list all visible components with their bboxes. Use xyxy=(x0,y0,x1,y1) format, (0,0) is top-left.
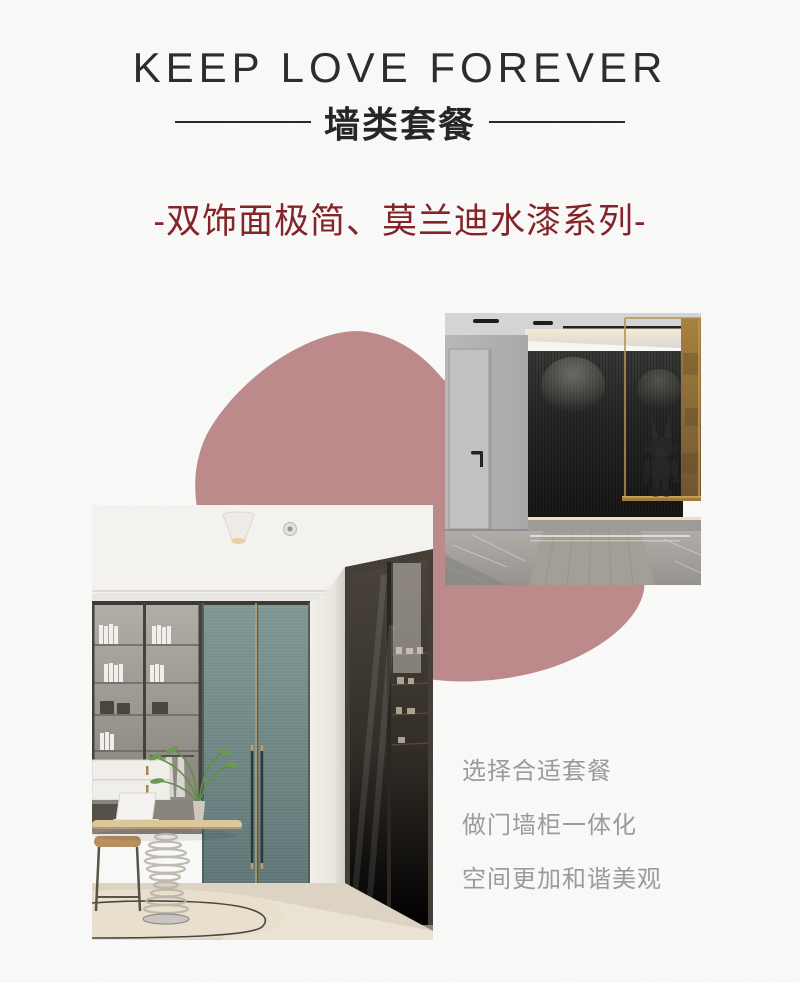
poster: KEEP LOVE FOREVER 墙类套餐 -双饰面极简、莫兰迪水漆系列- 选… xyxy=(0,0,800,983)
vase xyxy=(193,801,205,823)
marble-floor xyxy=(445,531,701,585)
laptop xyxy=(113,793,159,823)
glass-sliding-door xyxy=(345,549,433,937)
feature-line-2: 做门墙柜一体化 xyxy=(462,814,662,838)
right-divider-line xyxy=(489,121,625,123)
feature-list: 选择合适套餐 做门墙柜一体化 空间更加和谐美观 xyxy=(462,760,662,922)
door-handle xyxy=(471,451,483,455)
subtitle-row: 墙类套餐 xyxy=(0,100,800,144)
study-room-photo xyxy=(92,505,433,940)
curved-wall xyxy=(310,567,345,895)
recessed-light xyxy=(284,523,297,536)
feature-line-3: 空间更加和谐美观 xyxy=(462,868,662,892)
subtitle: 墙类套餐 xyxy=(324,96,476,148)
left-divider-line xyxy=(175,121,311,123)
led-strip xyxy=(528,517,701,520)
teal-double-doors xyxy=(202,601,310,883)
feature-line-1: 选择合适套餐 xyxy=(462,760,662,784)
series-title: -双饰面极简、莫兰迪水漆系列- xyxy=(0,193,800,244)
hallway-photo xyxy=(445,313,701,585)
page-title: KEEP LOVE FOREVER xyxy=(0,44,800,92)
entry-door xyxy=(449,349,492,529)
